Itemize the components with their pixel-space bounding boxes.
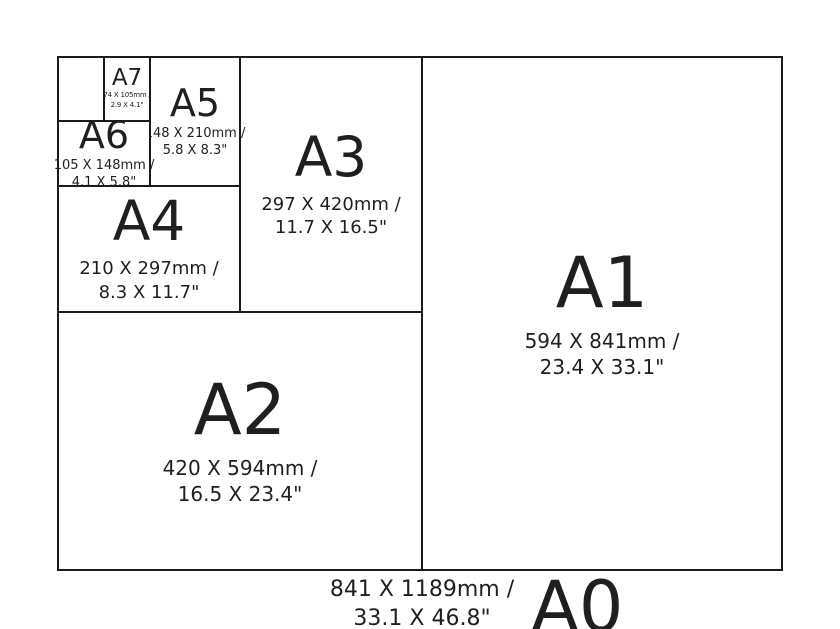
- a4-dimensions: 210 X 297mm / 8.3 X 11.7": [79, 257, 218, 304]
- a1-dimensions-inches: 23.4 X 33.1": [525, 354, 680, 380]
- a1-label: A1: [556, 248, 648, 318]
- a7-dimensions-inches: 2.9 X 4.1": [103, 101, 150, 111]
- a5-label: A5: [170, 84, 220, 122]
- a3-label: A3: [295, 130, 368, 185]
- a1-dimensions: 594 X 841mm / 23.4 X 33.1": [525, 328, 680, 380]
- a6-cell: A6 105 X 148mm / 4.1 X 5.8": [57, 120, 151, 187]
- a6-dimensions: 105 X 148mm / 4.1 X 5.8": [54, 158, 155, 192]
- a3-dimensions: 297 X 420mm / 11.7 X 16.5": [261, 193, 400, 240]
- a4-label: A4: [113, 194, 186, 249]
- a1-cell: A1 594 X 841mm / 23.4 X 33.1": [421, 56, 783, 571]
- a2-dimensions: 420 X 594mm / 16.5 X 23.4": [163, 455, 318, 507]
- a7-dimensions: 74 X 105mm / 2.9 X 4.1": [103, 91, 150, 111]
- a3-cell: A3 297 X 420mm / 11.7 X 16.5": [239, 56, 423, 313]
- a7-dimensions-mm: 74 X 105mm /: [103, 91, 150, 101]
- a0-label: A0: [531, 572, 623, 629]
- a5-cell: A5 148 X 210mm / 5.8 X 8.3": [149, 56, 241, 187]
- a3-dimensions-inches: 11.7 X 16.5": [261, 216, 400, 239]
- a3-dimensions-mm: 297 X 420mm /: [261, 193, 400, 216]
- a2-dimensions-inches: 16.5 X 23.4": [163, 481, 318, 507]
- a4-dimensions-mm: 210 X 297mm /: [79, 257, 218, 280]
- a6-dimensions-mm: 105 X 148mm /: [54, 158, 155, 175]
- a2-dimensions-mm: 420 X 594mm /: [163, 455, 318, 481]
- a4-cell: A4 210 X 297mm / 8.3 X 11.7": [57, 185, 241, 313]
- a4-dimensions-inches: 8.3 X 11.7": [79, 281, 218, 304]
- a7-label: A7: [112, 67, 142, 90]
- a2-cell: A2 420 X 594mm / 16.5 X 23.4": [57, 311, 423, 571]
- a8-empty-cell: [57, 56, 105, 122]
- a2-label: A2: [194, 375, 286, 445]
- a5-dimensions-inches: 5.8 X 8.3": [145, 143, 246, 160]
- a1-dimensions-mm: 594 X 841mm /: [525, 328, 680, 354]
- a5-dimensions: 148 X 210mm / 5.8 X 8.3": [145, 126, 246, 160]
- a5-dimensions-mm: 148 X 210mm /: [145, 126, 246, 143]
- a7-cell: A7 74 X 105mm / 2.9 X 4.1": [103, 56, 151, 122]
- paper-sizes-diagram: A1 594 X 841mm / 23.4 X 33.1" A2 420 X 5…: [0, 0, 840, 629]
- a6-dimensions-inches: 4.1 X 5.8": [54, 175, 155, 192]
